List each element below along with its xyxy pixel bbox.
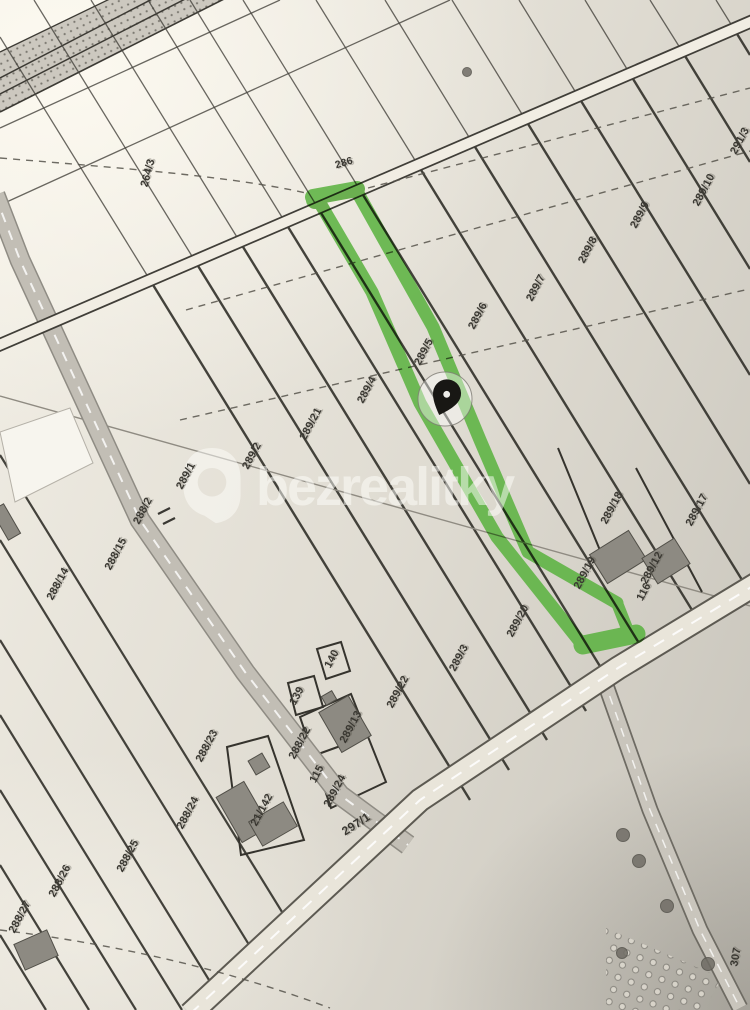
map-linework	[0, 0, 750, 1010]
tree-icons	[463, 68, 715, 971]
cadastral-map-canvas[interactable]: bezrealitky 264/3286291/3289/10289/9289/…	[0, 0, 750, 1010]
location-pin-icon[interactable]	[418, 372, 472, 426]
white-building	[0, 408, 93, 502]
field-path-line	[0, 396, 750, 606]
culvert-symbol	[158, 508, 175, 524]
stipple-band	[0, 0, 232, 112]
